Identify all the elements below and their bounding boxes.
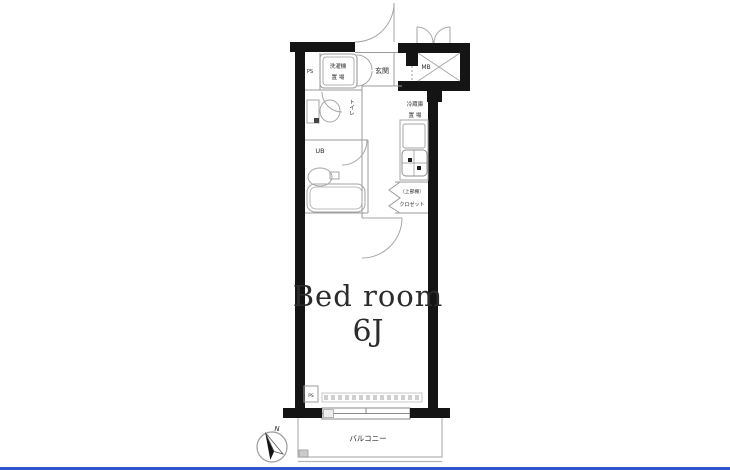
bath-fixtures [307, 168, 365, 212]
bedroom-label: Bed room [293, 279, 444, 313]
balcony-label: バルコニー [349, 434, 386, 443]
washing-machine-box [320, 54, 357, 88]
fridge-label-line1: 冷蔵庫 [407, 100, 424, 108]
pipe-space-top-label: PS [307, 69, 313, 75]
pipe-space-bottom-label: PS [308, 393, 314, 399]
bedroom-size-label: 6J [352, 314, 383, 349]
compass-north-label: N [274, 425, 280, 433]
fridge-label-line2: 置 場 [409, 111, 422, 119]
meter-box-label: MB [421, 64, 430, 71]
entrance-label: 玄関 [375, 66, 389, 75]
compass: N [257, 425, 287, 462]
closet-upper-shelf-label: （上部棚） [400, 188, 424, 195]
washer-label-line2: 置 場 [332, 73, 345, 81]
unit-bath-label: UB [315, 147, 324, 155]
balcony-drain [299, 450, 308, 457]
washer-label-line1: 洗濯機 [330, 62, 347, 70]
toilet-label: トイレ [348, 99, 355, 116]
walls [283, 42, 470, 418]
stove-fixture [402, 150, 427, 176]
closet-bifold-door [389, 182, 400, 213]
window-hatch-strip [322, 393, 422, 402]
toilet-fixture [307, 100, 340, 123]
floor-plan-page: Bed room 6J 玄関 MB PS 洗濯機 置 場 トイレ 冷蔵庫 置 場… [0, 0, 730, 470]
closet-label: クロゼット [399, 201, 424, 208]
balcony-window [322, 408, 410, 419]
floor-plan-drawing: Bed room 6J 玄関 MB PS 洗濯機 置 場 トイレ 冷蔵庫 置 場… [0, 0, 730, 470]
